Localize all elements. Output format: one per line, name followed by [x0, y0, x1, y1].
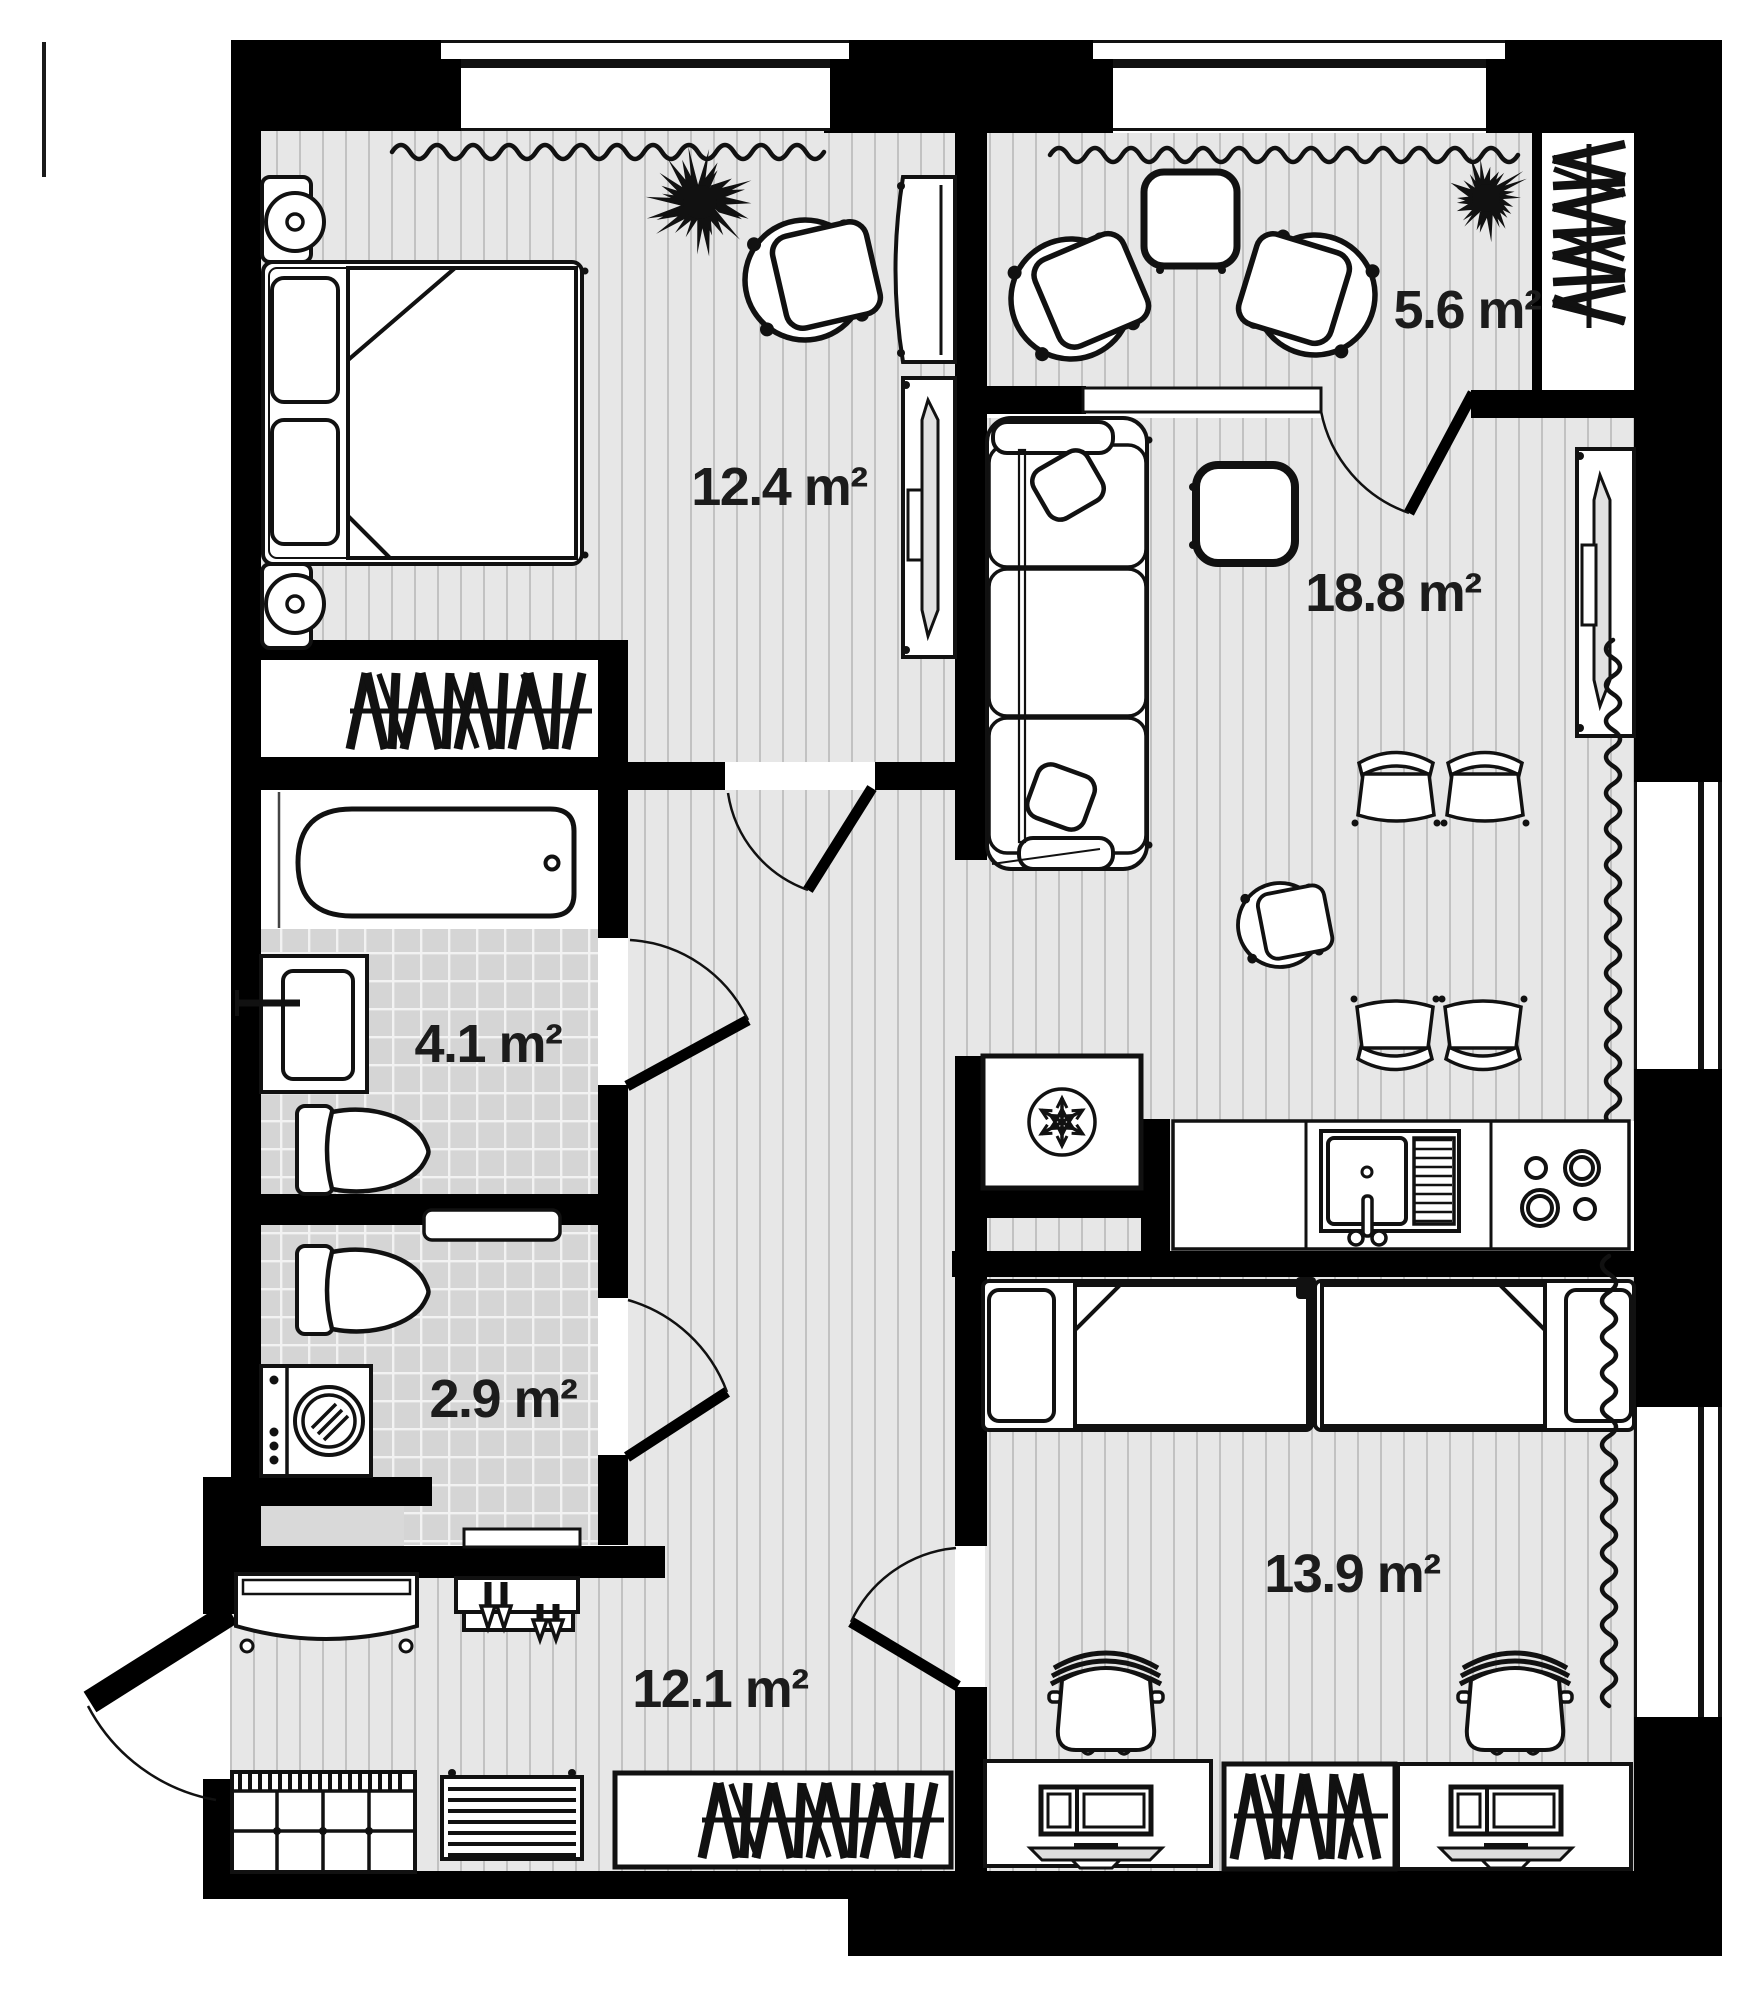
svg-text:13.9 m²: 13.9 m² [1264, 1544, 1440, 1604]
svg-text:5.6 m²: 5.6 m² [1393, 280, 1541, 340]
svg-text:12.1 m²: 12.1 m² [632, 1659, 808, 1719]
svg-text:4.1 m²: 4.1 m² [414, 1014, 562, 1074]
svg-text:2.9 m²: 2.9 m² [429, 1369, 577, 1429]
svg-text:18.8 m²: 18.8 m² [1305, 563, 1481, 623]
svg-text:12.4 m²: 12.4 m² [691, 457, 867, 517]
